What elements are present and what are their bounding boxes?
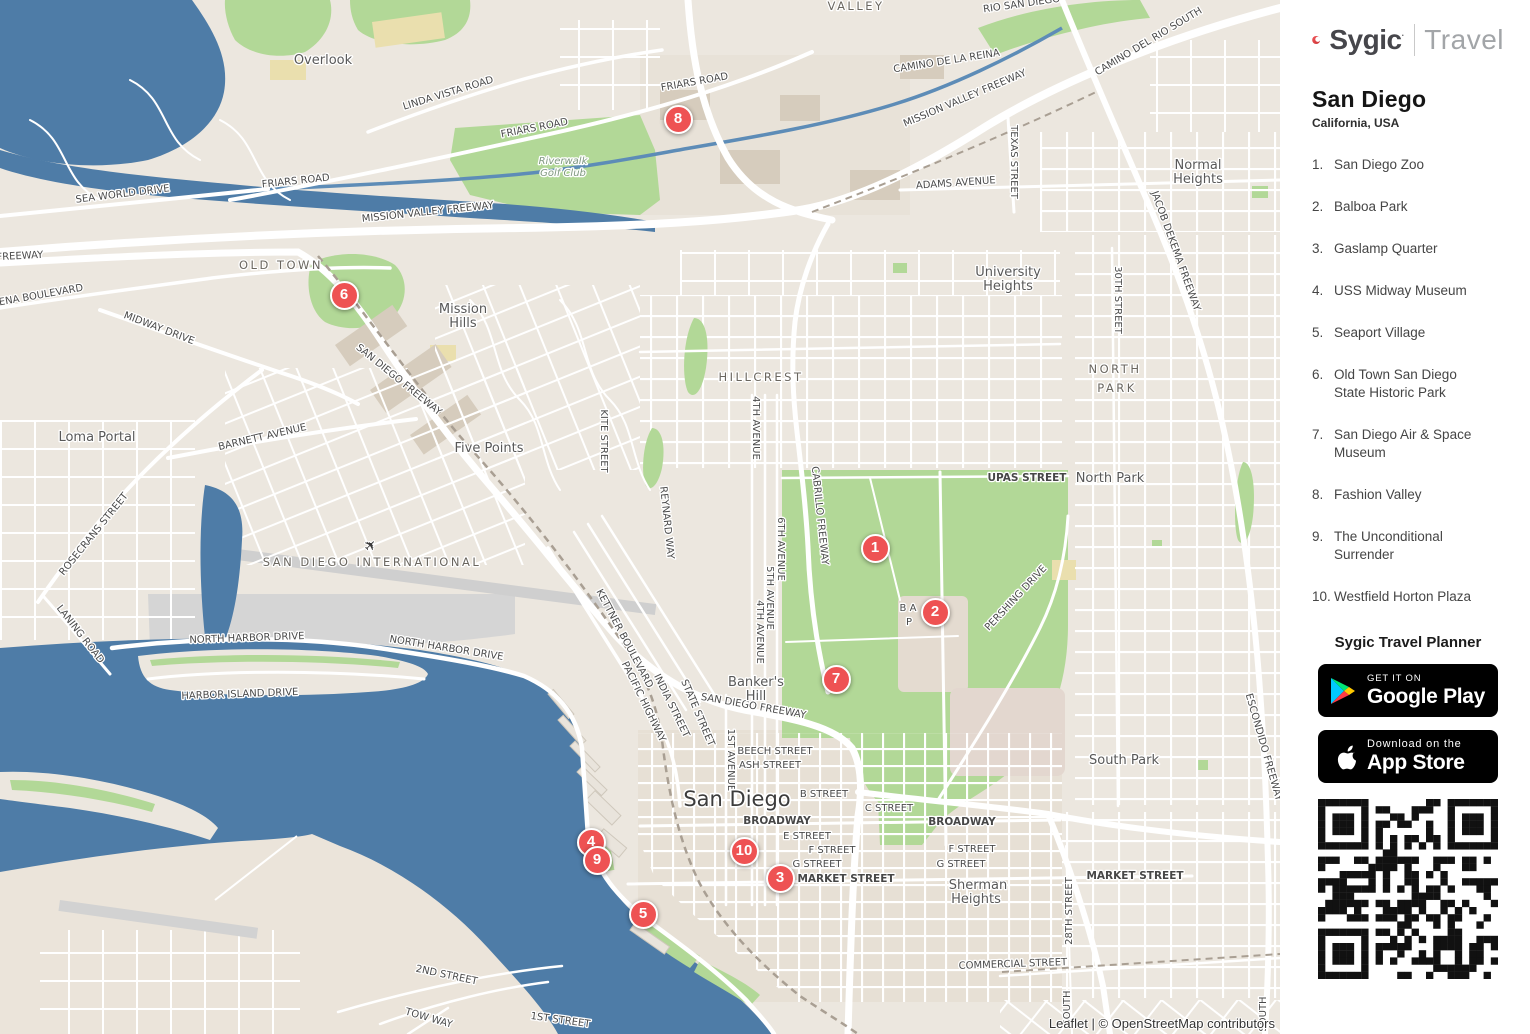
map-marker-9[interactable]: 9 [583, 846, 612, 875]
place-item-3: 3.Gaslamp Quarter [1312, 240, 1504, 258]
map-label: PARK [1097, 381, 1137, 395]
page-title: San Diego [1312, 86, 1504, 113]
map-label: Hills [449, 316, 477, 331]
map-label: UPAS STREET [988, 472, 1068, 484]
map-marker-1[interactable]: 1 [861, 534, 890, 563]
map-label: Five Points [454, 441, 523, 456]
map-label: C STREET [865, 803, 914, 814]
map-label: Loma Portal [58, 430, 135, 445]
app-store-label: App Store [1367, 751, 1465, 775]
map-marker-3[interactable]: 3 [766, 864, 795, 893]
app-store-badge[interactable]: Download on the App Store [1318, 730, 1498, 783]
apple-icon [1330, 742, 1356, 772]
map-label: G STREET [792, 859, 842, 870]
map-label: 28TH STREET [1064, 876, 1075, 945]
google-play-badge[interactable]: GET IT ON Google Play [1318, 664, 1498, 717]
planner-heading: Sygic Travel Planner [1312, 634, 1504, 651]
map-marker-2[interactable]: 2 [921, 598, 950, 627]
map-label: Heights [951, 892, 1001, 907]
map-label: Overlook [294, 53, 353, 68]
google-play-icon [1330, 677, 1356, 705]
map-label: BEECH STREET [737, 746, 813, 757]
page: VALLEYRIO SAN DIEGOCAMINO DE LA REINACAM… [0, 0, 1530, 1034]
map-label: SAN DIEGO INTERNATIONAL [263, 555, 481, 569]
map-marker-8[interactable]: 8 [664, 105, 693, 134]
qr-code [1318, 799, 1498, 979]
map-label: Mission [439, 302, 487, 317]
app-store-tagline: Download on the [1367, 738, 1465, 750]
map-label: Sherman [949, 878, 1007, 893]
map-label: F STREET [948, 844, 996, 855]
map-label: NORTH [1089, 362, 1142, 376]
map-label: Banker's [728, 675, 784, 690]
map-attribution[interactable]: Leaflet | © OpenStreetMap contributors [1049, 1016, 1275, 1031]
google-play-tagline: GET IT ON [1367, 673, 1485, 684]
place-item-5: 5.Seaport Village [1312, 324, 1504, 342]
map-label: 6TH AVENUE [775, 517, 786, 581]
sygic-crescent-icon [1312, 18, 1320, 62]
map-label: Hill [746, 689, 767, 704]
map-label: E STREET [783, 831, 832, 842]
map-label: BROADWAY [743, 815, 811, 827]
map-marker-5[interactable]: 5 [629, 900, 658, 929]
map-label: MARKET STREET [797, 873, 895, 885]
place-item-8: 8.Fashion Valley [1312, 486, 1504, 504]
map-label: B STREET [800, 789, 849, 800]
map-label: Heights [1173, 172, 1223, 187]
map-marker-6[interactable]: 6 [330, 281, 359, 310]
map-label: ASH STREET [739, 760, 802, 771]
map-label: 4TH AVENUE [750, 396, 761, 460]
map-label: BROADWAY [928, 816, 996, 828]
map-marker-10[interactable]: 10 [730, 837, 759, 866]
place-item-2: 2.Balboa Park [1312, 198, 1504, 216]
map-marker-7[interactable]: 7 [822, 665, 851, 694]
map-label: 30TH STREET [1112, 266, 1123, 335]
map-label: Golf Club [540, 168, 586, 179]
place-item-9: 9.The Unconditional Surrender [1312, 528, 1504, 564]
map-label: South Park [1089, 753, 1159, 768]
map-label: University [975, 265, 1041, 280]
map-label: P [906, 617, 912, 628]
map-label: Normal [1174, 158, 1221, 173]
place-item-7: 7.San Diego Air & Space Museum [1312, 426, 1504, 462]
map-label: TEXAS STREET [1008, 124, 1019, 200]
place-item-6: 6.Old Town San Diego State Historic Park [1312, 366, 1504, 402]
sidebar: Sygic· Travel San Diego California, USA … [1280, 0, 1530, 1034]
map-label: F STREET [808, 845, 856, 856]
map-label: Riverwalk [539, 156, 589, 167]
map-label: KITE STREET [598, 409, 609, 473]
map-base: VALLEYRIO SAN DIEGOCAMINO DE LA REINACAM… [0, 0, 1280, 1034]
map-label: 1ST AVENUE [725, 729, 736, 791]
brand-suffix: Travel [1424, 24, 1504, 56]
place-item-1: 1.San Diego Zoo [1312, 156, 1504, 174]
map-canvas[interactable]: VALLEYRIO SAN DIEGOCAMINO DE LA REINACAM… [0, 0, 1280, 1034]
map-label: HILLCREST [719, 370, 804, 384]
map-label: North Park [1076, 471, 1145, 486]
map-label: G STREET [936, 859, 986, 870]
place-item-4: 4.USS Midway Museum [1312, 282, 1504, 300]
page-subtitle: California, USA [1312, 116, 1504, 130]
map-label: MARKET STREET [1086, 870, 1184, 882]
google-play-label: Google Play [1367, 685, 1485, 709]
map-label: Heights [983, 279, 1033, 294]
brand-name: Sygic· [1329, 24, 1404, 56]
map-label: VALLEY [827, 0, 884, 13]
map-label: San Diego [683, 787, 790, 811]
map-label: OLD TOWN [239, 258, 323, 272]
brand-logo: Sygic· Travel [1312, 16, 1504, 64]
places-list: 1.San Diego Zoo 2.Balboa Park 3.Gaslamp … [1312, 156, 1504, 606]
map-label: 4TH AVENUE [754, 600, 765, 664]
map-label: B A [900, 603, 917, 614]
place-item-10: 10.Westfield Horton Plaza [1312, 588, 1504, 606]
